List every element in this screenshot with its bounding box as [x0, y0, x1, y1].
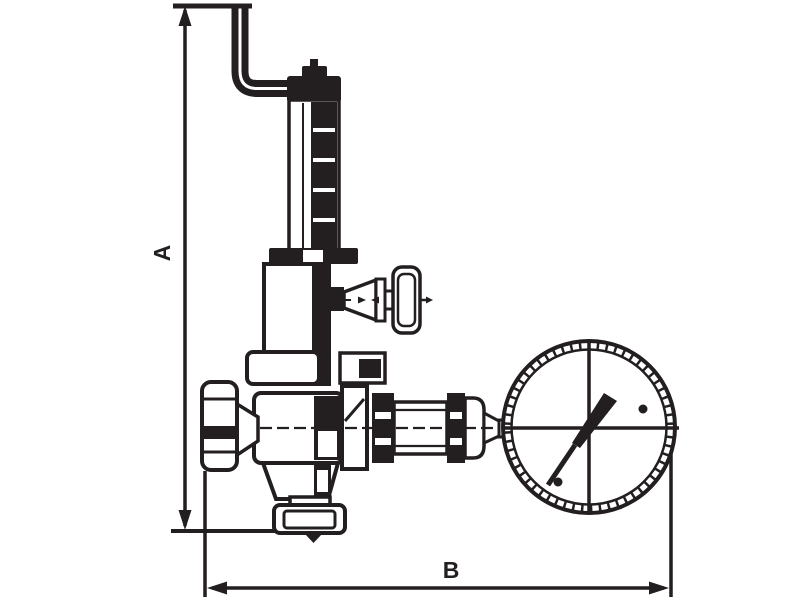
test-valve-icon — [331, 267, 433, 333]
gauge-dial-dot — [639, 405, 648, 414]
mid-collar-icon — [247, 350, 385, 386]
bottom-flange-icon — [274, 497, 345, 543]
flow-arrow-icon — [305, 534, 322, 543]
outlet-funnel-icon — [263, 463, 338, 499]
pressure-gauge-icon — [503, 341, 679, 513]
relief-outlet-pipe-icon — [240, 4, 292, 89]
handwheel-icon — [202, 382, 258, 470]
arrow-right-icon — [649, 582, 669, 595]
gauge-dial-dot — [554, 478, 563, 487]
dimension-b-label: B — [443, 557, 460, 583]
dimension-b-line-group: B — [207, 557, 669, 595]
dimension-a-label: A — [149, 245, 175, 262]
arrow-down-icon — [179, 510, 192, 530]
spring-housing-icon — [289, 100, 339, 256]
arrow-left-icon — [207, 582, 227, 595]
arrow-up-icon — [179, 6, 192, 26]
spring-adjuster-cap-icon — [287, 59, 341, 102]
valve-technical-drawing: A — [0, 0, 800, 598]
drawing-canvas: A — [0, 0, 800, 598]
bonnet-flange-icon — [269, 248, 358, 264]
